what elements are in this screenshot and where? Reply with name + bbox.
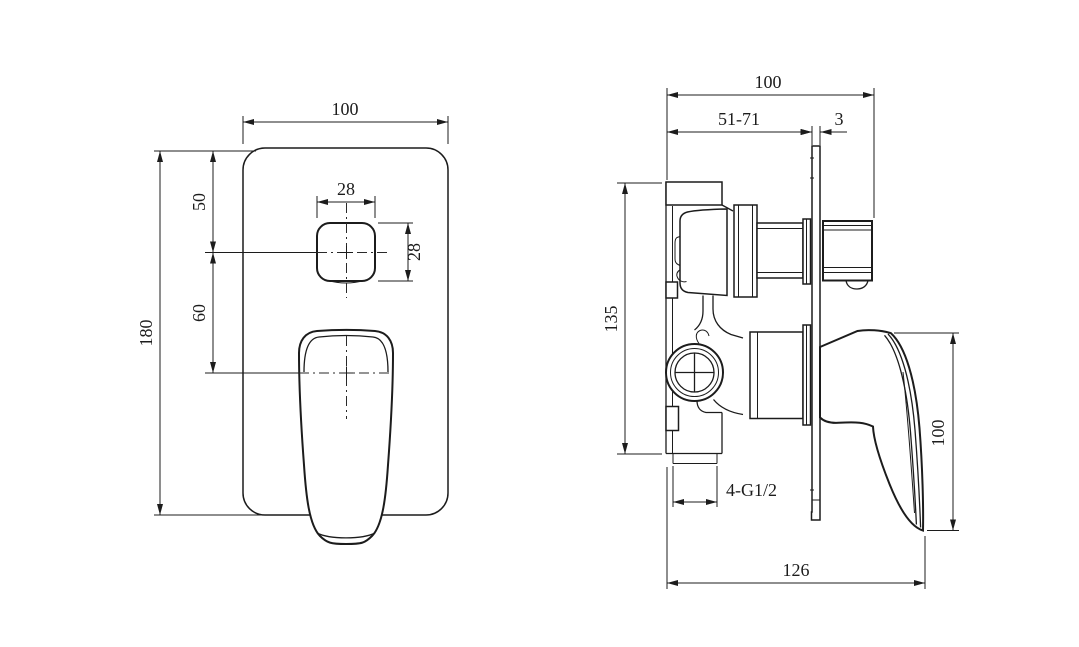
dim-side-thread: 4-G1/2 [673,466,777,507]
dim-side-plate-thickness: 3 [791,109,847,132]
side-install-depth-label: 51-71 [718,109,760,129]
front-knob-height-label: 28 [404,243,424,261]
side-thread-label: 4-G1/2 [726,480,777,500]
front-50-label: 50 [189,193,209,211]
side-lower-stem [750,325,811,425]
side-body-height-label: 135 [601,306,621,333]
technical-drawing: 100 180 50 60 28 [0,0,1079,647]
side-knob-stem [757,223,803,278]
side-total-depth-label: 100 [755,72,782,92]
side-top-inlet-block [666,182,722,205]
front-plate-width-label: 100 [332,99,359,119]
side-wall-plate [810,146,820,520]
side-port-circle [666,344,723,401]
front-view: 100 180 50 60 28 [136,99,448,544]
side-total-projection-label: 126 [783,560,810,580]
side-handle [820,330,923,530]
front-knob-width-label: 28 [337,179,355,199]
dim-side-body-height: 135 [601,183,662,454]
dim-front-plate-width: 100 [243,99,448,144]
side-knob [823,221,872,289]
side-plate-thickness-label: 3 [835,109,844,129]
side-handle-height-label: 100 [928,420,948,447]
drawing-canvas: 100 180 50 60 28 [0,0,1079,647]
front-plate-height-label: 180 [136,320,156,347]
side-cartridge [675,205,811,297]
dim-side-install-depth: 51-71 [667,109,820,145]
dim-side-total-projection: 126 [667,467,925,589]
front-60-label: 60 [189,304,209,322]
side-view: 100 51-71 3 135 100 [601,72,959,589]
